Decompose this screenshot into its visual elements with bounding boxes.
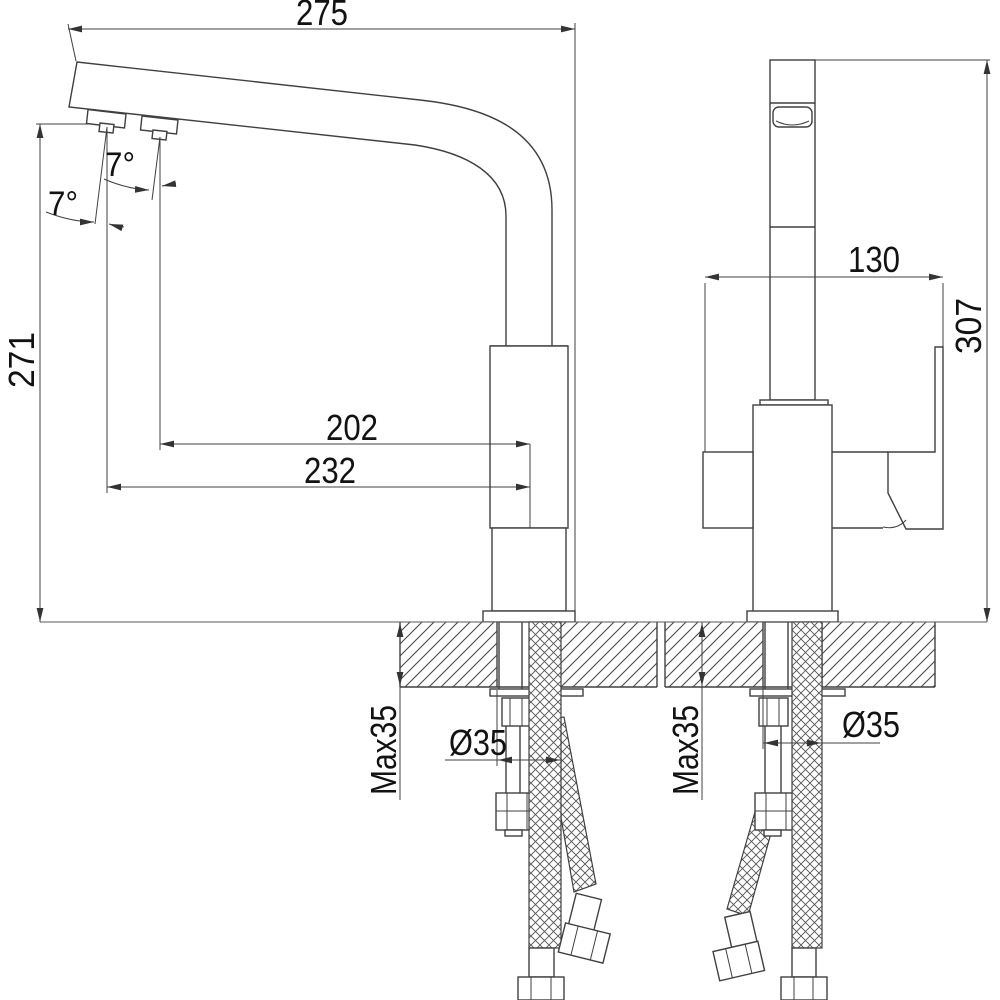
mounting-shank xyxy=(499,622,522,689)
riser-flange xyxy=(760,400,828,405)
hose-end-nut xyxy=(518,977,564,1000)
nozzle-axis-rear xyxy=(152,137,160,200)
counter-hatch xyxy=(560,622,657,687)
faucet-body-side xyxy=(483,346,575,622)
spout-socket-block xyxy=(703,452,753,528)
front-view: 130 307 Max35 Ø35 xyxy=(665,60,990,1000)
dim-label-130: 130 xyxy=(848,239,900,280)
spout-outline xyxy=(69,62,568,346)
dim-label-271: 271 xyxy=(1,332,42,388)
dim-label-232: 232 xyxy=(304,450,356,491)
hose-end-nut xyxy=(781,977,827,1000)
dim-label-307: 307 xyxy=(948,298,989,354)
counter-hatch xyxy=(665,622,763,687)
stud-tip xyxy=(764,830,781,836)
dim-label-275: 275 xyxy=(296,0,348,33)
dim-label-max35-right: Max35 xyxy=(665,705,706,795)
angle-arc-front2 xyxy=(109,224,124,227)
dim-label-dia35-left: Ø35 xyxy=(449,722,507,763)
base-plate-front xyxy=(747,611,838,622)
dim-label-max35-left: Max35 xyxy=(363,705,404,795)
body-lower-block xyxy=(492,528,566,611)
hose-end-nut-diagonal xyxy=(558,923,610,963)
hose-ferrule xyxy=(529,948,554,977)
stud-tip xyxy=(505,830,522,836)
braided-hose-straight xyxy=(529,622,561,948)
side-view: 275 271 202 232 7° 7° Max35 Ø35 xyxy=(1,0,657,1000)
handle-lever xyxy=(888,347,943,529)
dim-label-dia35-right: Ø35 xyxy=(842,704,900,745)
faucet-technical-drawing: 275 271 202 232 7° 7° Max35 Ø35 xyxy=(0,0,1000,1000)
body-column xyxy=(753,405,832,613)
braided-hose-straight xyxy=(792,622,822,948)
dim-label-202: 202 xyxy=(326,407,378,448)
aerator xyxy=(773,107,812,127)
dim-275-ext-left xyxy=(68,24,76,61)
handle-arm-joint xyxy=(832,452,888,528)
mounting-shank xyxy=(765,622,788,689)
drawing-canvas: 275 271 202 232 7° 7° Max35 Ø35 xyxy=(0,0,1000,1000)
dim-label-angle-rear: 7° xyxy=(105,146,135,184)
body-upper-block xyxy=(490,346,568,528)
hose-end-nut-diagonal xyxy=(713,941,765,981)
faucet-body-front xyxy=(703,60,943,622)
base-plate-side xyxy=(483,611,575,622)
dimensions-front xyxy=(702,60,990,800)
threaded-stud xyxy=(765,726,781,793)
dim-label-angle-front: 7° xyxy=(48,185,78,223)
counter-hatch xyxy=(822,622,935,687)
hose-ferrule xyxy=(792,948,816,977)
counter-hatch xyxy=(400,622,497,687)
angle-arc-rear2 xyxy=(162,183,176,186)
